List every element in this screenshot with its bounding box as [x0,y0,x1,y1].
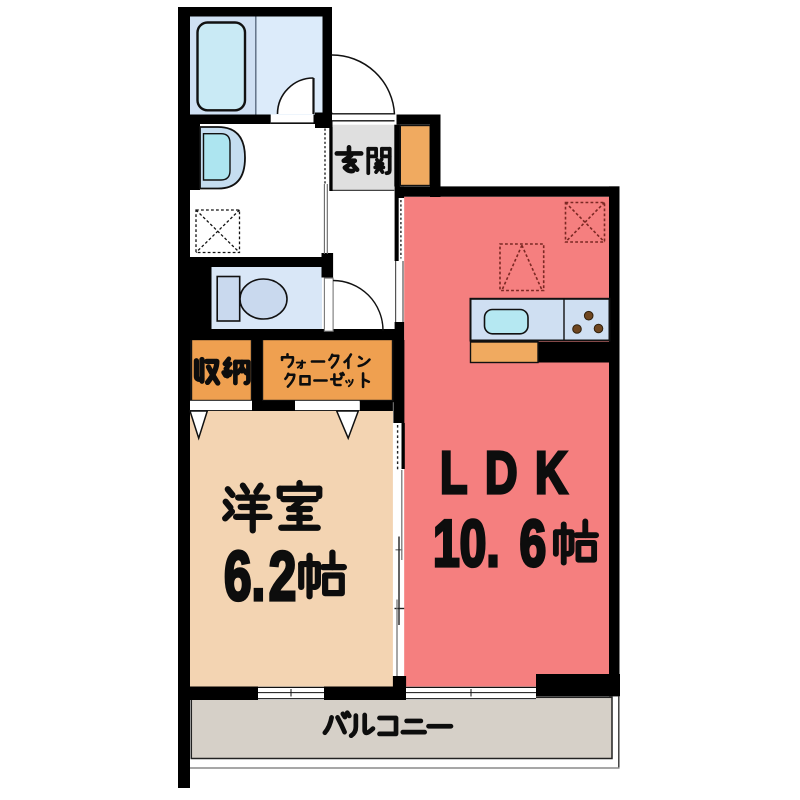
svg-text:10.: 10. [433,508,500,581]
svg-text:2: 2 [269,537,297,615]
svg-text:LDK: LDK [440,440,585,507]
svg-text:6: 6 [520,508,547,581]
svg-text:6.: 6. [224,537,265,615]
